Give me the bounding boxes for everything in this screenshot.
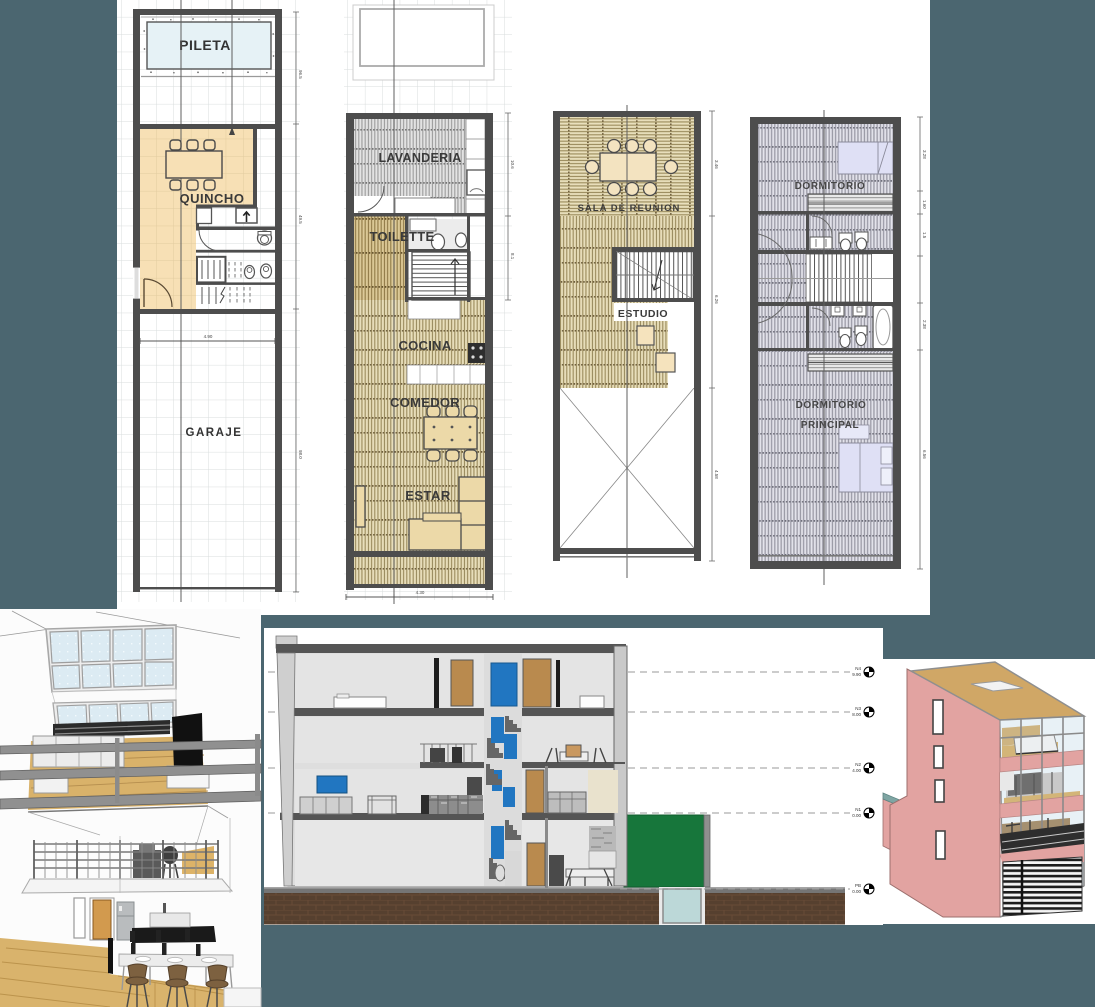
- svg-text:98.0: 98.0: [298, 450, 303, 459]
- svg-text:1.5: 1.5: [922, 232, 927, 239]
- svg-text:N1: N1: [855, 807, 861, 812]
- svg-text:10.6: 10.6: [510, 160, 515, 169]
- svg-text:6.56: 6.56: [922, 450, 927, 459]
- svg-text:SALA DE REUNION: SALA DE REUNION: [578, 203, 681, 214]
- svg-text:0.00: 0.00: [852, 889, 861, 894]
- svg-text:8.1: 8.1: [510, 253, 515, 260]
- svg-text:4.90: 4.90: [204, 334, 213, 339]
- svg-text:DORMITORIO: DORMITORIO: [795, 181, 866, 192]
- svg-text:6.26: 6.26: [714, 295, 719, 304]
- svg-text:3.46: 3.46: [714, 160, 719, 169]
- svg-text:GARAJE: GARAJE: [186, 427, 243, 439]
- svg-text:0.00: 0.00: [852, 813, 861, 818]
- svg-text:4.30: 4.30: [416, 590, 425, 595]
- svg-text:QUINCHO: QUINCHO: [180, 191, 245, 206]
- svg-text:DORMITORIO: DORMITORIO: [796, 400, 867, 411]
- svg-text:COCINA: COCINA: [398, 338, 451, 353]
- svg-text:PB: PB: [855, 883, 861, 888]
- svg-text:8.00: 8.00: [852, 712, 861, 717]
- svg-text:4.58: 4.58: [714, 470, 719, 479]
- svg-text:COMEDOR: COMEDOR: [390, 395, 460, 410]
- svg-text:N4: N4: [855, 666, 861, 671]
- svg-text:N2: N2: [855, 762, 861, 767]
- svg-text:ESTAR: ESTAR: [405, 488, 451, 503]
- svg-text:TOILETTE: TOILETTE: [370, 229, 435, 244]
- svg-text:PRINCIPAL: PRINCIPAL: [801, 420, 860, 431]
- svg-text:2.38: 2.38: [922, 320, 927, 329]
- svg-text:49.5: 49.5: [298, 215, 303, 224]
- svg-text:PILETA: PILETA: [179, 37, 231, 53]
- svg-text:ESTUDIO: ESTUDIO: [618, 308, 668, 320]
- svg-text:96.5: 96.5: [298, 70, 303, 79]
- svg-text:3.28: 3.28: [922, 150, 927, 159]
- svg-text:4.00: 4.00: [852, 768, 861, 773]
- svg-text:1.60: 1.60: [922, 200, 927, 209]
- svg-text:LAVANDERIA: LAVANDERIA: [378, 151, 461, 165]
- svg-text:N3: N3: [855, 706, 861, 711]
- svg-text:9.90: 9.90: [852, 672, 861, 677]
